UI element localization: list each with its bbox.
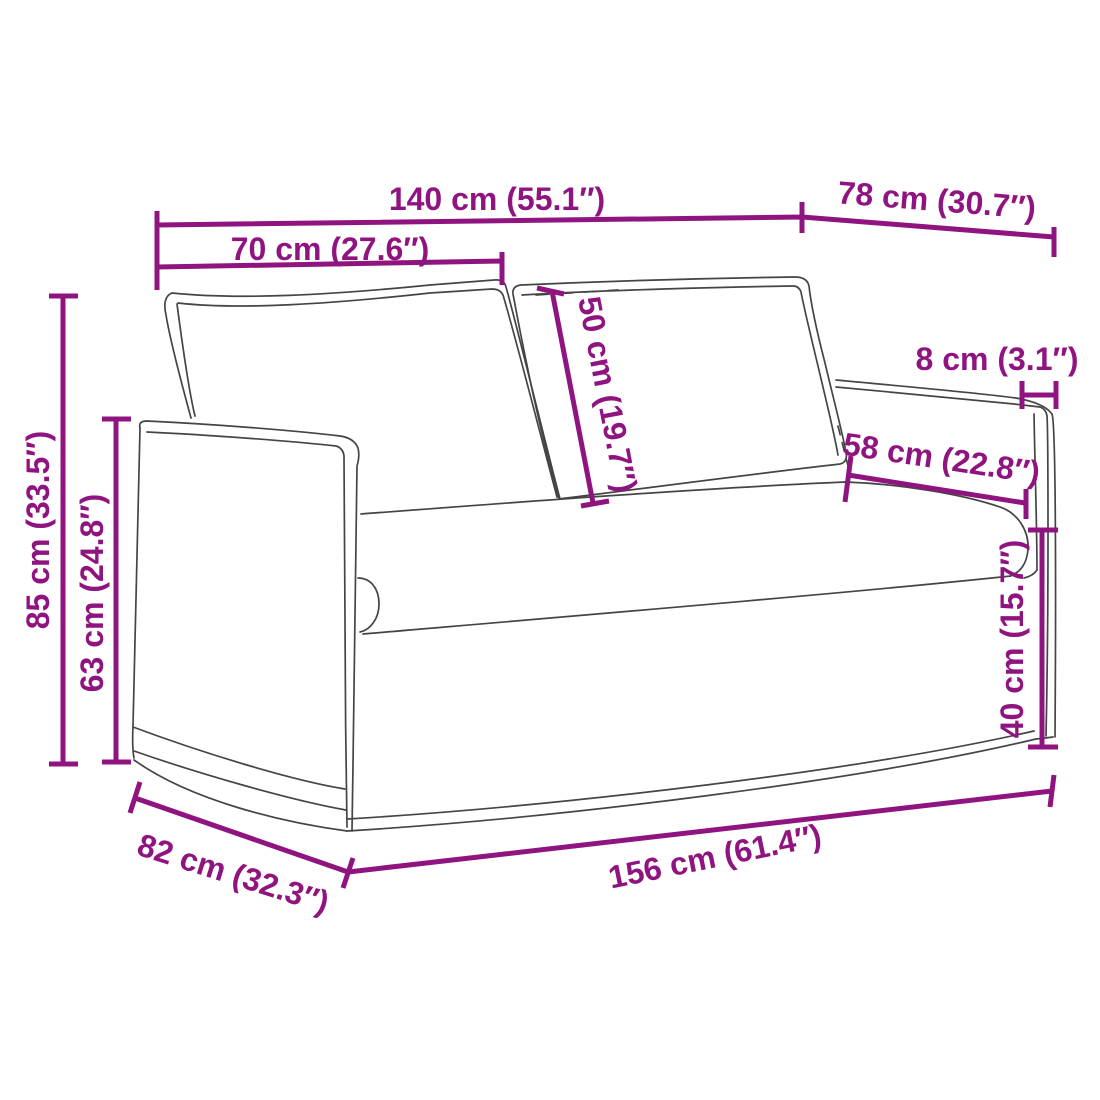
svg-text:40 cm (15.7″): 40 cm (15.7″) — [994, 540, 1030, 739]
svg-text:8 cm (3.1″): 8 cm (3.1″) — [916, 341, 1079, 377]
svg-text:140 cm (55.1″): 140 cm (55.1″) — [389, 181, 605, 217]
svg-text:85 cm (33.5″): 85 cm (33.5″) — [20, 431, 56, 630]
svg-text:63 cm (24.8″): 63 cm (24.8″) — [74, 494, 110, 693]
svg-text:70 cm (27.6″): 70 cm (27.6″) — [231, 231, 430, 267]
